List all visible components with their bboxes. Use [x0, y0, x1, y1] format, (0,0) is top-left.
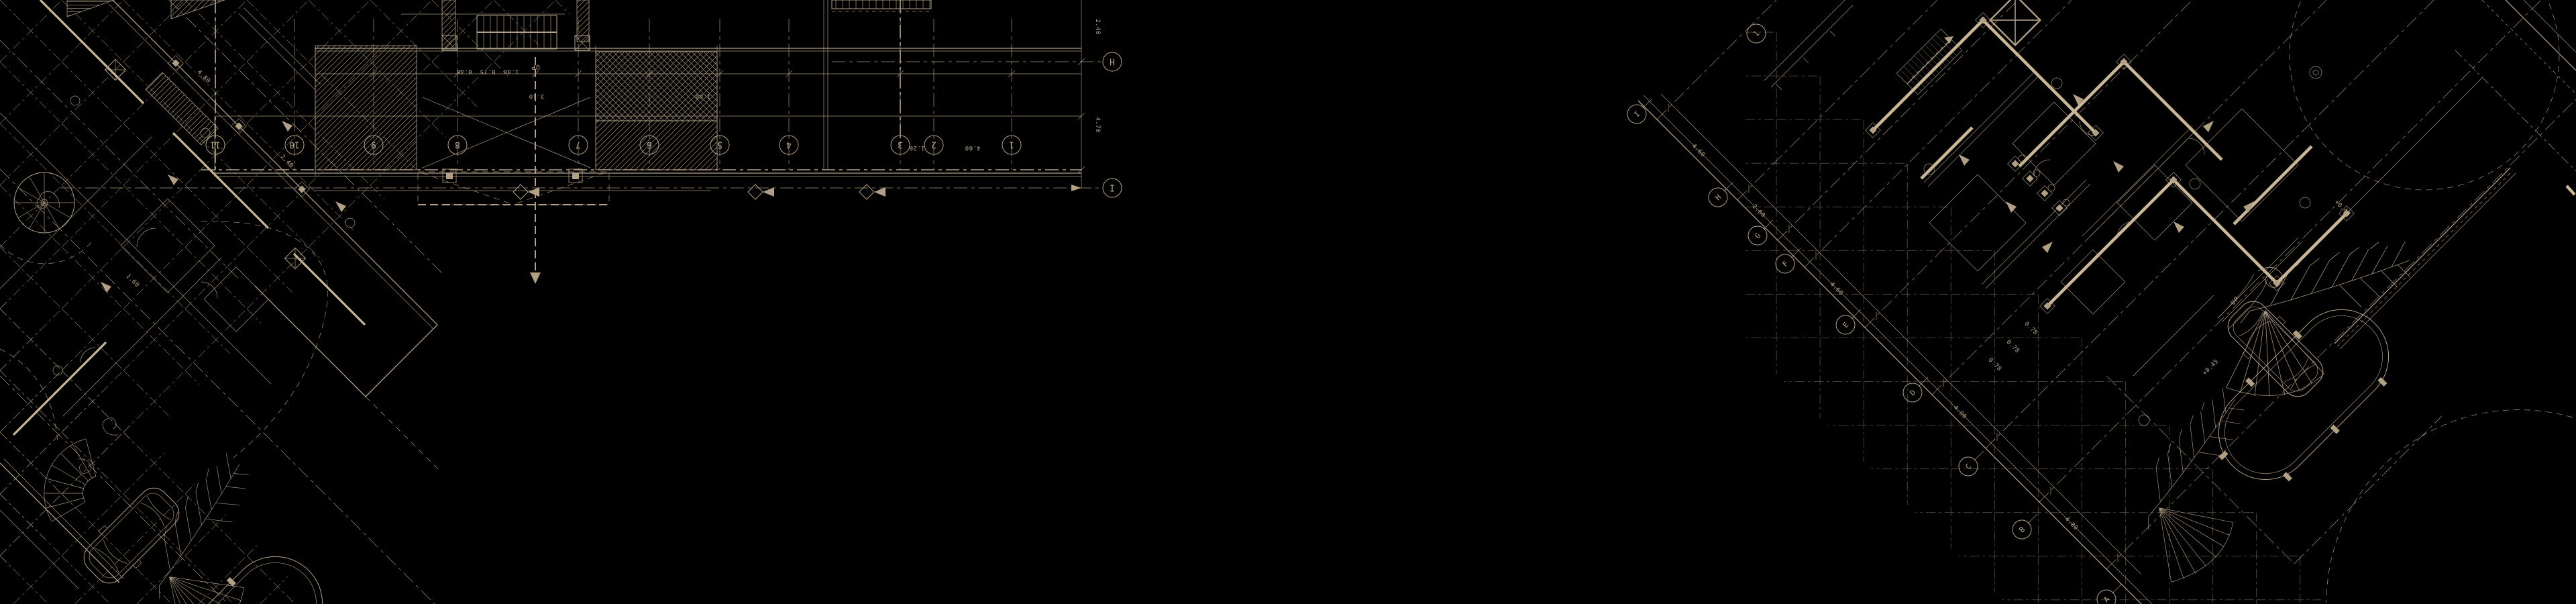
dim-label: 1.20: [909, 144, 924, 151]
dim-label: 4.60: [1690, 143, 1707, 159]
stair-run-top: [832, 0, 931, 11]
stair-run-icon: [1896, 29, 1962, 94]
blueprint-canvas: 4.80 2.40 1.60: [0, 0, 2576, 604]
column-box-icon: [569, 169, 582, 183]
hatched-wall-block: [315, 46, 417, 170]
grid-bubble-label: 3: [898, 140, 903, 150]
dashed-site-arc: [2326, 410, 2573, 603]
grid-bubble-label: 1: [1009, 140, 1014, 150]
palm-leaf-icon: [2209, 238, 2425, 403]
grid-bubble: I: [1103, 179, 1122, 197]
grid-bubble-label: H: [1110, 56, 1115, 66]
grid-bubble: I: [1627, 105, 1646, 123]
grid-bubble-label: 10: [289, 140, 300, 150]
left-wing-plan: 4.80 2.40 1.60: [0, 0, 584, 604]
section-marker-icon: [748, 185, 774, 199]
dashed-turning-circle: [2290, 0, 2559, 190]
crossed-shaft-icon: [1990, 0, 2041, 45]
right-wing-plan: I H G F E D C B A 1 4.60 2.60 4.60 4.80 …: [1573, 0, 2576, 604]
spiral-stair-icon: [14, 172, 74, 233]
grid-bubble-label: I: [1110, 183, 1115, 193]
grid-bubble-label: 4: [786, 140, 792, 150]
dim-label: 4.70: [1094, 117, 1101, 132]
hatched-column: [442, 0, 455, 49]
blueprint-hero-background: 4.80 2.40 1.60: [0, 0, 2576, 604]
grid-bubble-label: 2: [931, 140, 936, 150]
dim-label: 4.60: [965, 144, 980, 151]
dim-label: 2.40: [1094, 19, 1101, 34]
level-label: +0.45: [2202, 358, 2220, 377]
level-label: +0.40: [2333, 199, 2352, 218]
up-label: UP: [531, 63, 539, 70]
dim-label: 0.40: [456, 68, 472, 74]
grid-bubble: H: [1709, 188, 1727, 207]
column-box-icon: [443, 169, 456, 183]
grid-bubble: H: [1103, 52, 1122, 71]
hatched-wall-block: [596, 52, 717, 121]
dim-label: 1.40: [503, 68, 519, 74]
bath-fixtures: [2008, 155, 2070, 215]
dim-label: 0.75: [480, 68, 495, 74]
grid-bubble-label: 5: [717, 140, 722, 150]
dim-label: 1.60: [695, 93, 710, 99]
grid-bubble-label: 7: [576, 140, 581, 150]
grid-lattice-right: [1573, 0, 2332, 604]
dim-label: 3.10: [529, 93, 544, 99]
grid-bubble-label: 6: [647, 140, 652, 150]
hatched-wall-block: [596, 121, 717, 170]
car-icon: [2219, 293, 2332, 405]
grid-bubble-label: H: [1713, 193, 1723, 202]
grid-bubble-label: 8: [455, 140, 460, 150]
grid-bubble-label: 9: [371, 140, 376, 150]
grid-bubble-label: I: [1632, 109, 1642, 119]
door-marker-icon: [1959, 94, 2254, 253]
section-marker-icon: [859, 185, 885, 199]
grid-bubble-label: 11: [210, 140, 221, 150]
